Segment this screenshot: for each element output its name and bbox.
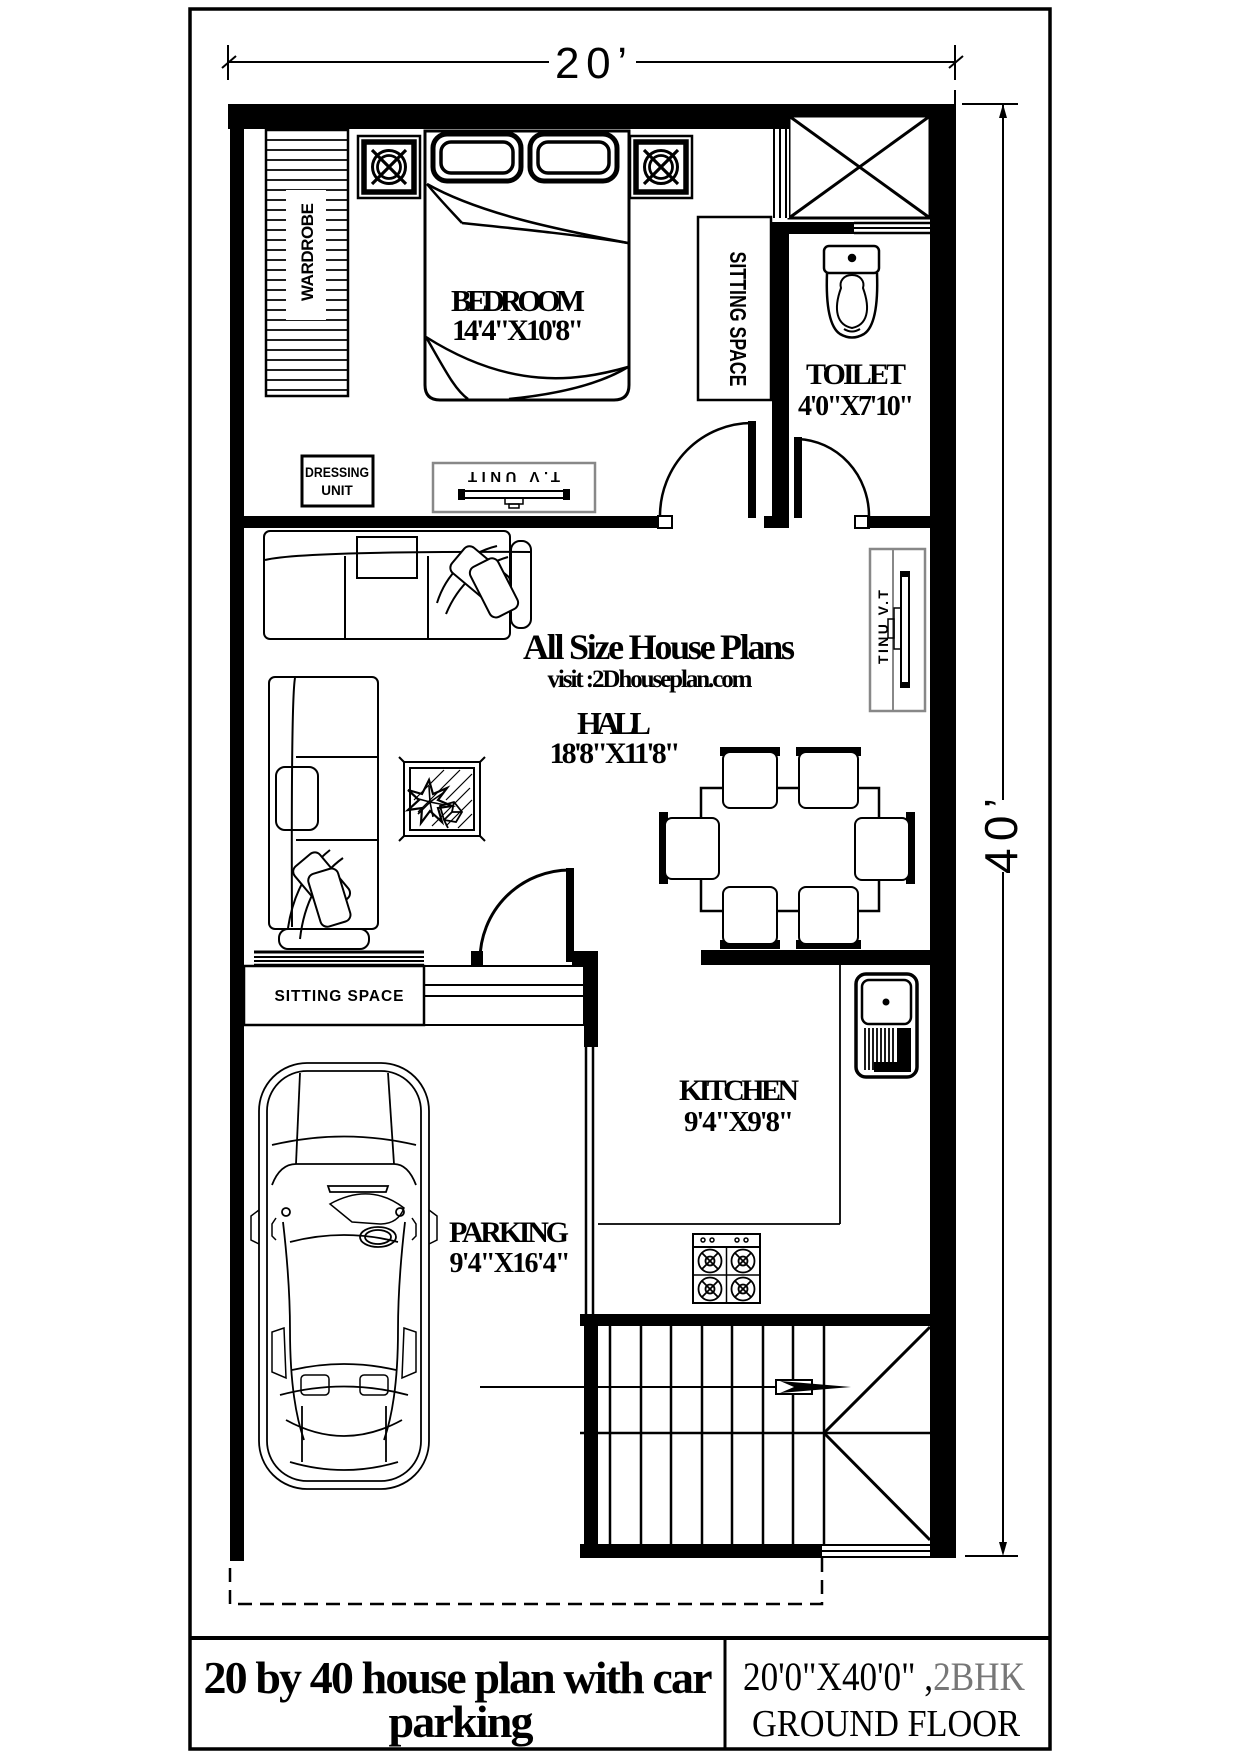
svg-text:9'4"X9'8": 9'4"X9'8" bbox=[684, 1106, 794, 1138]
svg-text:visit :2Dhouseplan.com: visit :2Dhouseplan.com bbox=[548, 666, 753, 693]
svg-text:DRESSING: DRESSING bbox=[305, 465, 369, 480]
svg-text:TOILET: TOILET bbox=[806, 358, 906, 391]
svg-text:SITTING SPACE: SITTING SPACE bbox=[725, 252, 751, 387]
svg-text:BEDROOM: BEDROOM bbox=[451, 283, 585, 318]
svg-text:4'0"X7'10": 4'0"X7'10" bbox=[798, 391, 914, 422]
svg-text:T.V UNIT: T.V UNIT bbox=[468, 468, 560, 485]
svg-text:9'4"X16'4": 9'4"X16'4" bbox=[450, 1248, 571, 1279]
svg-text:14'4"X10'8": 14'4"X10'8" bbox=[452, 314, 584, 347]
svg-text:WARDROBE: WARDROBE bbox=[298, 203, 317, 301]
svg-text:UNIT: UNIT bbox=[321, 483, 353, 498]
svg-text:20'0"X40'0" ,2BHK: 20'0"X40'0" ,2BHK bbox=[743, 1654, 1025, 1699]
svg-text:PARKING: PARKING bbox=[449, 1216, 569, 1249]
svg-text:GROUND FLOOR: GROUND FLOOR bbox=[752, 1703, 1021, 1745]
svg-text:SITTING SPACE: SITTING SPACE bbox=[275, 988, 404, 1005]
svg-text:parking: parking bbox=[389, 1696, 534, 1747]
svg-text:18'8"X11'8": 18'8"X11'8" bbox=[550, 737, 681, 770]
svg-text:HALL: HALL bbox=[577, 705, 651, 741]
svg-text:KITCHEN: KITCHEN bbox=[679, 1074, 799, 1107]
svg-text:All Size House Plans: All Size House Plans bbox=[523, 627, 795, 667]
